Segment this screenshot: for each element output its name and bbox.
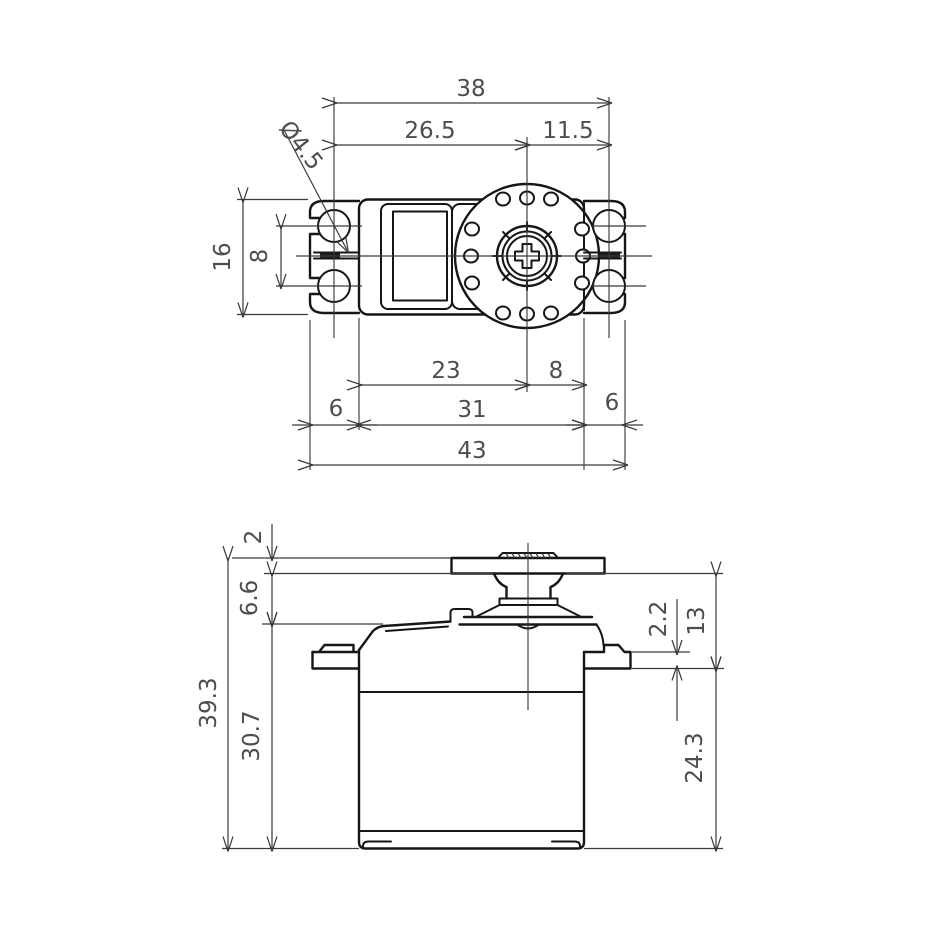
- dim-text-2-2: 2.2: [646, 601, 672, 638]
- dim-overall-height: 39.3: [196, 558, 228, 849]
- flange-left-outline: [313, 645, 360, 669]
- dim-horn-thickness: 2: [241, 524, 272, 558]
- dim-text-dia-4-5: Ø4.5: [273, 116, 327, 175]
- body-case-front: [359, 650, 584, 849]
- servo-dimension-drawing: 38 26.5 11.5 Ø4.5 16 8: [0, 0, 944, 944]
- dim-text-26-5: 26.5: [404, 118, 455, 144]
- drawing-page: 38 26.5 11.5 Ø4.5 16 8: [0, 0, 944, 944]
- mounting-flange-right: [584, 645, 631, 669]
- dim-text-6-right: 6: [605, 390, 620, 416]
- dim-overall-length: 43: [310, 438, 625, 465]
- dim-text-8-body: 8: [549, 358, 564, 384]
- shoulder-left: [359, 622, 451, 651]
- dim-tab-hole-diameter: Ø4.5: [273, 116, 347, 250]
- dim-case-height: 30.7: [239, 624, 272, 849]
- dim-tab-hole-pitch: 8: [247, 226, 281, 286]
- dim-text-31: 31: [457, 397, 486, 423]
- dim-text-6-left: 6: [329, 396, 344, 422]
- dim-mount-hole-span: 38: [334, 76, 609, 103]
- front-view: 2 6.6 39.3 30.7 2.2 13: [196, 524, 724, 849]
- dim-horn-to-flange: 13: [684, 574, 716, 669]
- dim-text-16: 16: [210, 242, 236, 271]
- dim-text-39-3: 39.3: [196, 677, 222, 728]
- dim-text-8-pitch: 8: [247, 249, 273, 264]
- shoulder-left-chamfer: [386, 627, 448, 632]
- dim-horn-to-case: 6.6: [237, 574, 272, 625]
- top-view: 38 26.5 11.5 Ø4.5 16 8: [210, 76, 652, 470]
- dim-text-30-7: 30.7: [239, 710, 265, 761]
- servo-body-front: [359, 622, 584, 849]
- gearhead-right-curve: [597, 625, 604, 646]
- dim-text-6-6: 6.6: [237, 580, 263, 617]
- dim-text-43: 43: [457, 438, 486, 464]
- dim-text-2: 2: [241, 530, 267, 545]
- dim-flange-thickness: 2.2: [646, 599, 677, 721]
- dim-text-13: 13: [684, 606, 710, 635]
- dim-text-23: 23: [431, 358, 460, 384]
- dim-text-24-3: 24.3: [682, 732, 708, 783]
- dim-hole-to-shaft: 26.5 11.5: [334, 118, 609, 145]
- dim-text-11-5: 11.5: [542, 118, 593, 144]
- mounting-flange-left: [313, 645, 360, 669]
- gearhead-front: [451, 574, 604, 646]
- dim-text-38: 38: [456, 76, 485, 102]
- flange-right-outline: [584, 645, 631, 669]
- case-nub: [451, 609, 473, 621]
- dim-flange-to-bottom: 24.3: [682, 669, 716, 849]
